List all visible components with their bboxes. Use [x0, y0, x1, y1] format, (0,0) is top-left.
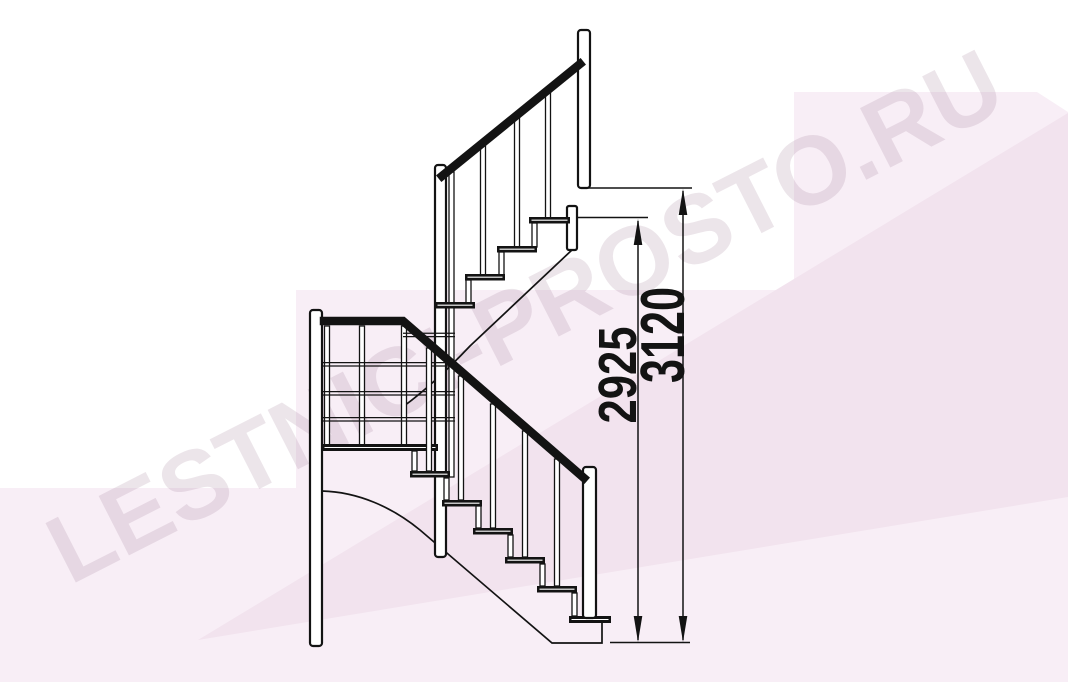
tread-support [540, 564, 545, 586]
tread-support [572, 593, 577, 616]
tread-support [466, 280, 471, 303]
baluster [515, 118, 520, 247]
baluster [523, 431, 528, 557]
baluster [555, 459, 560, 586]
tread-support [508, 535, 513, 557]
top-post [578, 30, 590, 188]
tread-support [412, 451, 417, 471]
left-post [310, 310, 322, 646]
tread-support [532, 223, 537, 247]
tread-support [499, 252, 504, 275]
winder-baluster [402, 326, 407, 445]
tread-support [476, 506, 481, 528]
upper-handrail [442, 64, 580, 176]
tread-support [444, 478, 449, 500]
winder-baluster [449, 172, 454, 477]
bottom-post [583, 467, 596, 618]
winder-baluster [325, 326, 330, 445]
drawing-canvas: LESTNICI-PROSTO.RU [0, 0, 1068, 682]
dim-label-3120: 3120 [629, 287, 698, 383]
staircase-elevation-svg: LESTNICI-PROSTO.RU [0, 0, 1068, 682]
baluster [481, 146, 486, 275]
baluster [546, 93, 551, 218]
baluster [427, 348, 432, 471]
baluster [491, 404, 496, 528]
baluster [459, 376, 464, 500]
winder-baluster [360, 326, 365, 445]
landing-bracket [567, 206, 577, 250]
